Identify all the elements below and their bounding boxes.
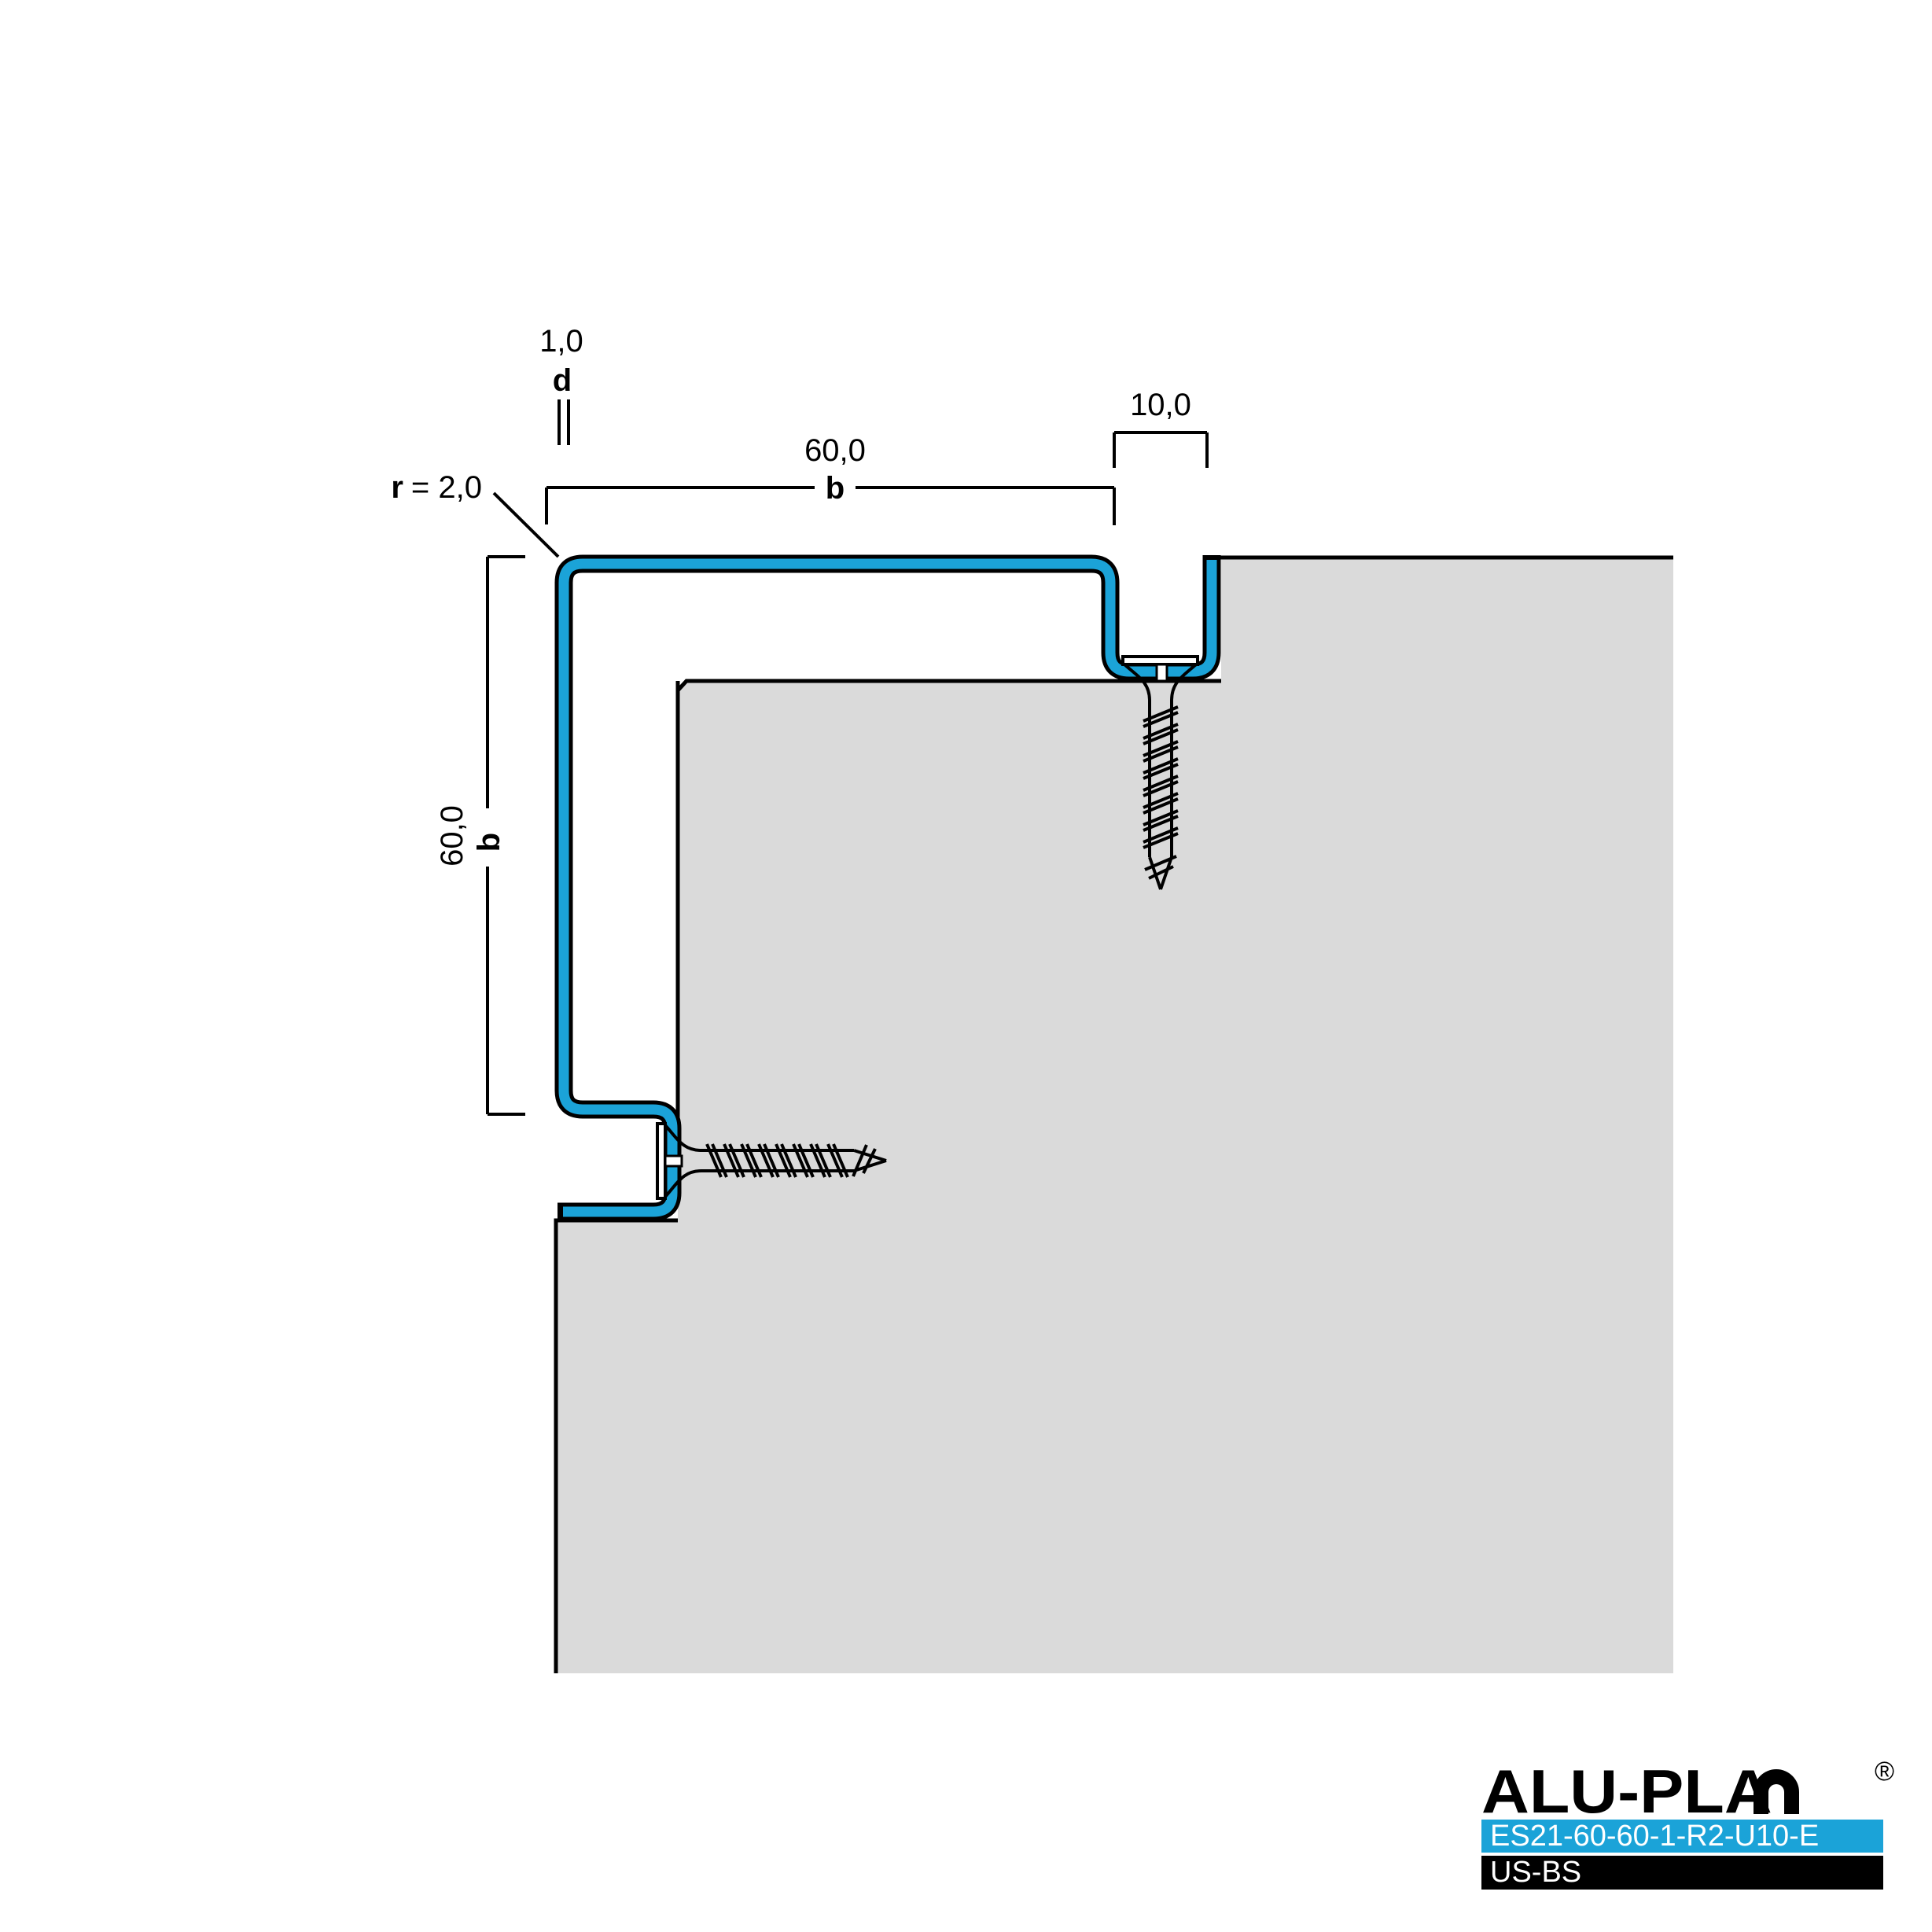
screw-bottom-slot: [665, 1156, 682, 1166]
dim-radius-label: r= 2,0: [391, 470, 482, 505]
dim-groove-value: 10,0: [1130, 388, 1191, 422]
brand-text: ALU-PLA: [1481, 1769, 1772, 1814]
dim-radius-prefix: r: [391, 470, 403, 505]
dim-thickness-label: d: [553, 363, 572, 398]
dim-height-label: b: [472, 833, 506, 852]
logo-block: ® ALU-PLA ES21-60-60-1-R2-U10-E US-BS: [1481, 1760, 1883, 1890]
screw-top-slot: [1157, 664, 1167, 681]
dim-thickness-marks: [559, 399, 569, 445]
dim-height-value: 60,0: [435, 805, 469, 867]
wall-cross-section: [556, 558, 1673, 1673]
dim-width-value: 60,0: [804, 433, 866, 468]
registered-trademark-icon: ®: [1875, 1757, 1894, 1787]
dim-radius-value: = 2,0: [411, 470, 482, 505]
dim-thickness-value: 1,0: [539, 324, 583, 359]
brand-wordmark: ALU-PLA: [1481, 1769, 1883, 1814]
dim-width-label: b: [826, 471, 845, 506]
dim-groove-line: [1114, 432, 1207, 468]
radius-leader-line: [494, 493, 558, 557]
profile-section-drawing: 1,0 d 60,0 b 10,0 60,0 b r= 2,0: [0, 0, 1932, 1932]
variant-code-bar: US-BS: [1481, 1856, 1883, 1890]
variant-code: US-BS: [1490, 1856, 1581, 1890]
wall-body: [556, 558, 1673, 1673]
drawing-canvas: 1,0 d 60,0 b 10,0 60,0 b r= 2,0 ® ALU-PL…: [0, 0, 1932, 1932]
